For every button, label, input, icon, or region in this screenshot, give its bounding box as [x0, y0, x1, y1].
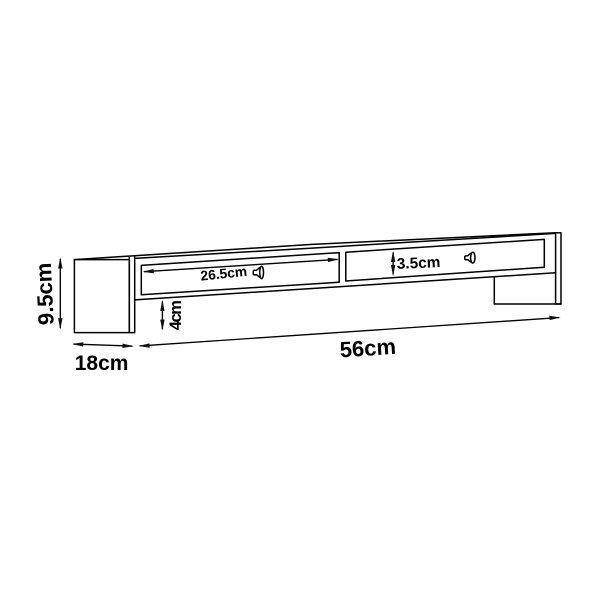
svg-text:4cm: 4cm	[167, 301, 185, 331]
svg-text:56cm: 56cm	[339, 334, 397, 363]
svg-text:18cm: 18cm	[75, 352, 129, 375]
svg-text:3.5cm: 3.5cm	[396, 254, 440, 273]
svg-text:9.5cm: 9.5cm	[31, 262, 59, 325]
